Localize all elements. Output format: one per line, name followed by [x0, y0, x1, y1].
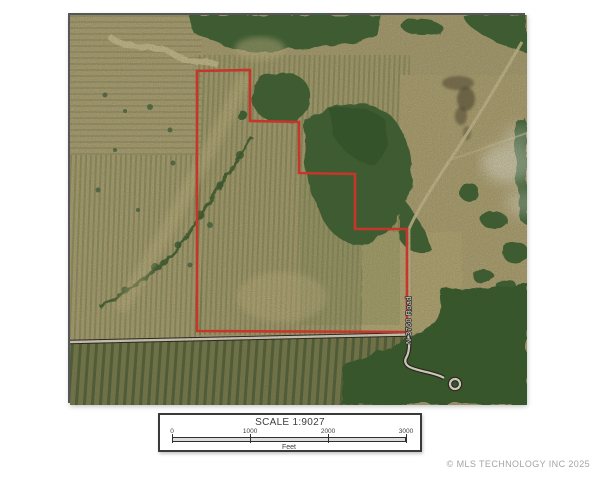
scale-tick — [250, 434, 251, 443]
aerial-map-image: N 3760 Road — [68, 13, 525, 403]
scale-bar-line — [172, 437, 406, 442]
scale-ruler: 0 1000 2000 3000 Feet — [172, 415, 406, 450]
scale-tick — [172, 434, 173, 443]
scale-unit-label: Feet — [172, 444, 406, 451]
scale-tick — [328, 434, 329, 443]
scale-bar: SCALE 1:9027 0 1000 2000 3000 Feet — [158, 413, 422, 452]
satellite-image: N 3760 Road — [70, 15, 527, 405]
grain-overlay — [70, 15, 527, 405]
copyright-notice: © MLS TECHNOLOGY INC 2025 — [447, 459, 590, 469]
scale-tick — [406, 434, 407, 443]
